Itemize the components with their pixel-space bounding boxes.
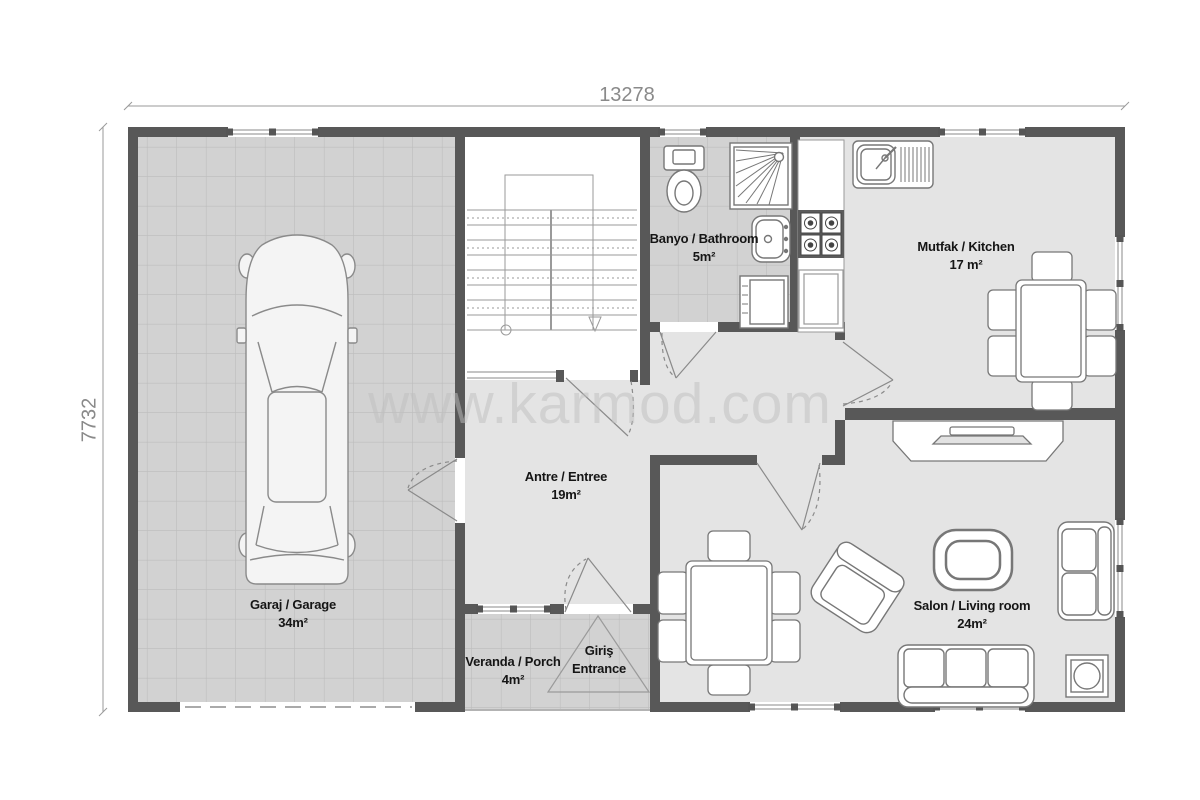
- salon-window-right: [1115, 518, 1125, 618]
- bathroom-name: Banyo / Bathroom: [650, 230, 759, 248]
- salon-label: Salon / Living room 24m²: [914, 597, 1031, 633]
- salon-window-left: [748, 702, 841, 712]
- kitchen-sink-icon: [853, 141, 933, 188]
- veranda-area: 4m²: [465, 671, 560, 689]
- watermark: www.karmod.com: [368, 371, 832, 437]
- entrance-name-en: Entrance: [572, 660, 626, 678]
- kitchen-label: Mutfak / Kitchen 17 m²: [917, 238, 1014, 274]
- bathroom-label: Banyo / Bathroom 5m²: [650, 230, 759, 266]
- bathroom-area: 5m²: [650, 248, 759, 266]
- hall-window: [476, 604, 551, 614]
- hall-area: 19m²: [525, 486, 607, 504]
- veranda-name: Veranda / Porch: [465, 653, 560, 671]
- bathroom-window: [658, 127, 707, 137]
- garage-door: [180, 702, 415, 712]
- entrance-name-tr: Giriş: [572, 642, 626, 660]
- hall-name: Antre / Entree: [525, 468, 607, 486]
- salon-name: Salon / Living room: [914, 597, 1031, 615]
- car-icon: [237, 235, 357, 584]
- kitchen-area: 17 m²: [917, 256, 1014, 274]
- shower-icon: [730, 143, 792, 209]
- stove-icon: [798, 210, 844, 258]
- tv-unit-icon: [893, 421, 1063, 461]
- loveseat-icon: [1058, 522, 1114, 620]
- salon-area: 24m²: [914, 615, 1031, 633]
- stairwell-floor: [465, 137, 640, 380]
- coffee-table-icon: [934, 530, 1012, 590]
- toilet-icon: [664, 146, 704, 212]
- kitchen-window-top: [938, 127, 1026, 137]
- heater-icon: [1066, 655, 1108, 697]
- washing-machine-icon: [740, 276, 788, 328]
- veranda-label: Veranda / Porch 4m²: [465, 653, 560, 689]
- floor-plan: www.karmod.com 13278 7732 Banyo / Bathro…: [0, 0, 1200, 800]
- dimension-width-label: 13278: [599, 84, 655, 107]
- kitchen-name: Mutfak / Kitchen: [917, 238, 1014, 256]
- sofa-icon: [898, 645, 1034, 707]
- garage-label: Garaj / Garage 34m²: [250, 596, 336, 632]
- garage-window: [226, 127, 319, 137]
- dimension-height-label: 7732: [79, 398, 102, 443]
- entrance-label: Giriş Entrance: [572, 642, 626, 678]
- garage-area: 34m²: [250, 614, 336, 632]
- refrigerator-icon: [799, 270, 843, 328]
- garage-name: Garaj / Garage: [250, 596, 336, 614]
- hall-label: Antre / Entree 19m²: [525, 468, 607, 504]
